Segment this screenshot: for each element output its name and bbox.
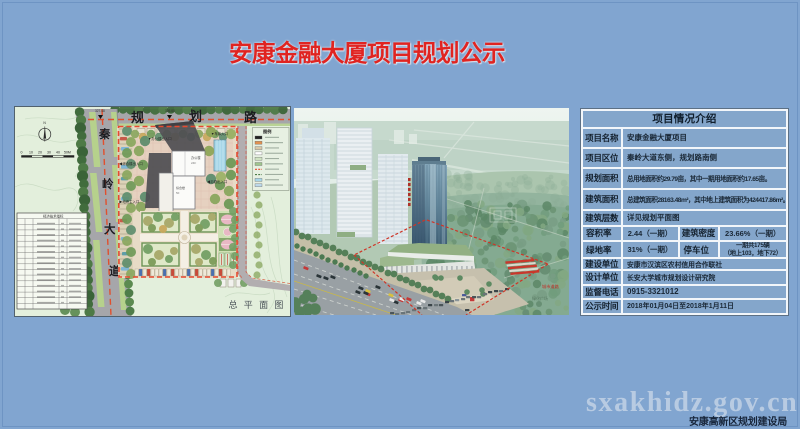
svg-text:总平面图: 总平面图 [229, 299, 290, 310]
svg-text:大: 大 [104, 222, 116, 236]
svg-text:40: 40 [56, 151, 60, 155]
svg-text:30: 30 [47, 151, 51, 155]
svg-text:绿化广场: 绿化广场 [532, 295, 548, 301]
svg-text:◀后勤出入口: ◀后勤出入口 [207, 179, 227, 184]
svg-text:▶地块主入口: ▶地块主入口 [119, 199, 139, 204]
svg-text:综合楼: 综合楼 [176, 185, 185, 190]
svg-text:10: 10 [29, 151, 33, 155]
svg-text:经济技术指标: 经济技术指标 [43, 214, 64, 219]
svg-text:327.48: 327.48 [95, 109, 105, 113]
svg-text:路: 路 [244, 110, 258, 125]
svg-text:0: 0 [21, 151, 23, 155]
svg-text:24F: 24F [191, 161, 196, 165]
svg-text:▼办公楼出入口: ▼办公楼出入口 [148, 136, 172, 141]
svg-text:岭: 岭 [102, 177, 114, 191]
svg-text:5F: 5F [176, 191, 180, 195]
svg-text:20: 20 [38, 151, 42, 155]
svg-text:秦: 秦 [98, 127, 111, 141]
svg-text:图例: 图例 [263, 128, 271, 135]
svg-text:50M: 50M [64, 151, 71, 155]
svg-text:▼车库入口: ▼车库入口 [211, 131, 228, 136]
svg-text:规: 规 [131, 110, 144, 125]
svg-text:326.60: 326.60 [165, 109, 175, 113]
svg-text:城市道路: 城市道路 [542, 283, 560, 290]
svg-text:办公楼: 办公楼 [191, 155, 201, 160]
svg-text:◀综合楼出入口: ◀综合楼出入口 [119, 161, 143, 166]
